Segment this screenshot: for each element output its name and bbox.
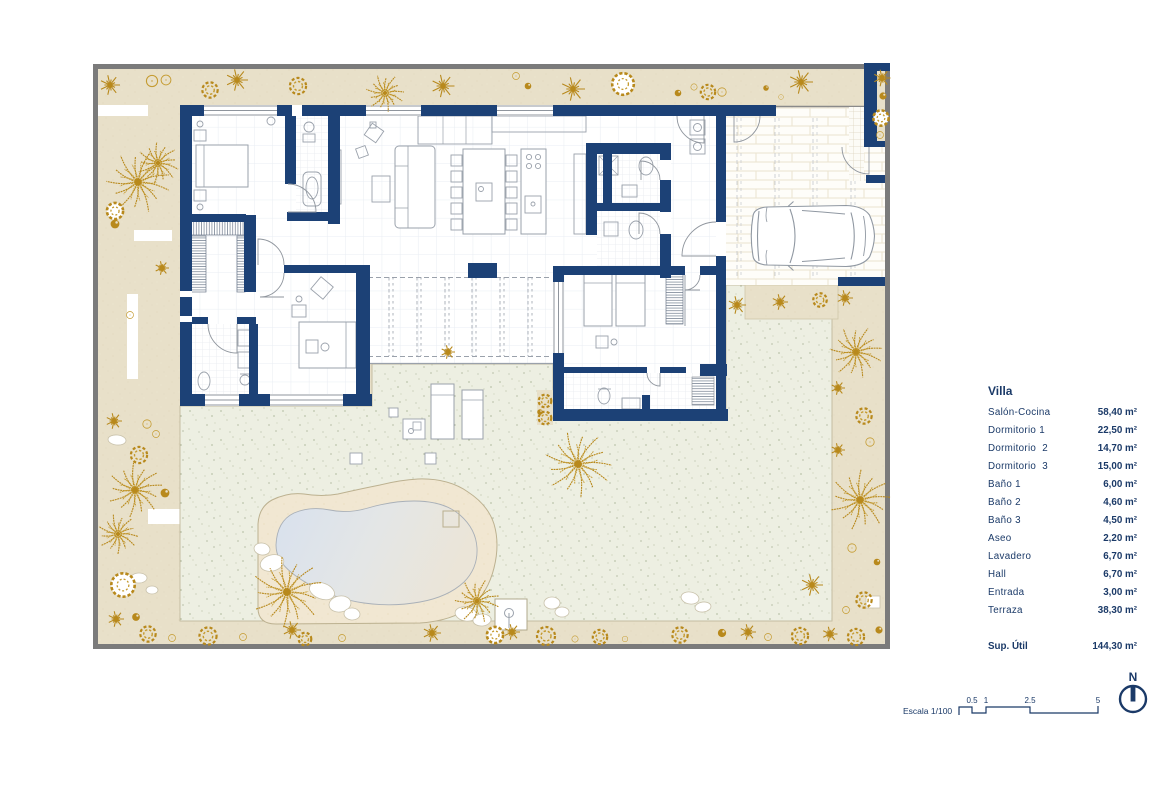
svg-text:6,70 m²: 6,70 m² [1103, 569, 1138, 580]
svg-text:2.5: 2.5 [1024, 696, 1036, 705]
svg-text:0.5: 0.5 [966, 696, 978, 705]
svg-text:Baño 1: Baño 1 [988, 479, 1021, 490]
svg-text:6,00 m²: 6,00 m² [1103, 479, 1138, 490]
svg-text:Villa: Villa [988, 384, 1013, 398]
svg-text:15,00 m²: 15,00 m² [1098, 461, 1138, 472]
svg-text:Sup. Útil: Sup. Útil [988, 640, 1028, 652]
svg-text:5: 5 [1096, 696, 1101, 705]
svg-text:N: N [1129, 670, 1138, 684]
svg-text:Dormitorio 1: Dormitorio 1 [988, 425, 1045, 436]
svg-text:1: 1 [984, 696, 989, 705]
svg-text:4,60 m²: 4,60 m² [1103, 497, 1138, 508]
svg-text:144,30 m²: 144,30 m² [1092, 641, 1137, 652]
svg-text:Hall: Hall [988, 569, 1006, 580]
svg-text:38,30 m²: 38,30 m² [1098, 605, 1138, 616]
svg-text:22,50 m²: 22,50 m² [1098, 425, 1138, 436]
svg-text:Dormitorio 2: Dormitorio 2 [988, 443, 1048, 454]
svg-text:58,40 m²: 58,40 m² [1098, 407, 1138, 418]
svg-text:14,70 m²: 14,70 m² [1098, 443, 1138, 454]
svg-text:Salón-Cocina: Salón-Cocina [988, 407, 1051, 418]
svg-text:6,70 m²: 6,70 m² [1103, 551, 1138, 562]
svg-text:Dormitorio 3: Dormitorio 3 [988, 461, 1048, 472]
svg-text:Entrada: Entrada [988, 587, 1025, 598]
svg-text:Escala 1/100: Escala 1/100 [903, 706, 952, 716]
svg-text:2,20 m²: 2,20 m² [1103, 533, 1138, 544]
svg-text:Terraza: Terraza [988, 605, 1023, 616]
svg-text:3,00 m²: 3,00 m² [1103, 587, 1138, 598]
svg-text:Aseo: Aseo [988, 533, 1012, 544]
svg-text:Baño 3: Baño 3 [988, 515, 1021, 526]
svg-text:4,50 m²: 4,50 m² [1103, 515, 1138, 526]
svg-text:Lavadero: Lavadero [988, 551, 1032, 562]
svg-text:Baño 2: Baño 2 [988, 497, 1021, 508]
